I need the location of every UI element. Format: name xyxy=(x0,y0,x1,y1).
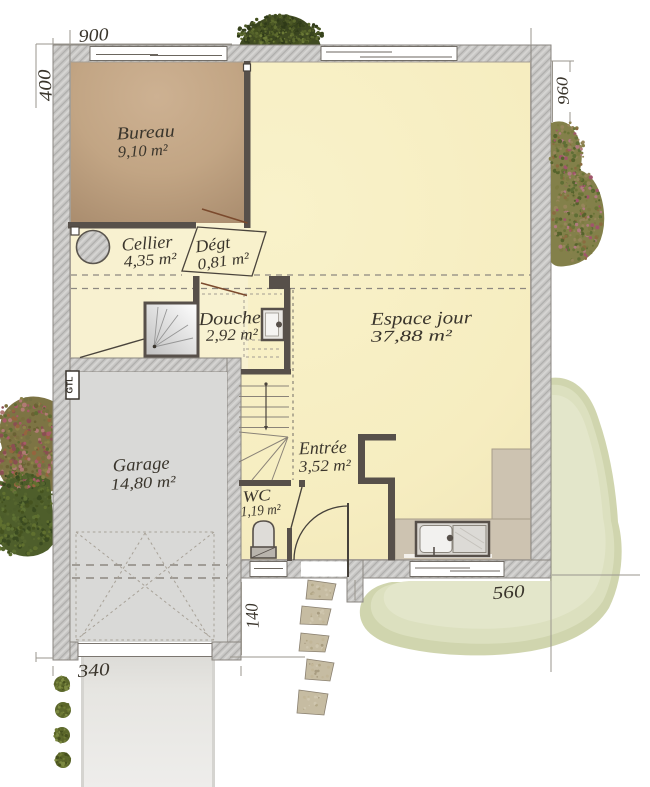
svg-text:Espace jour: Espace jour xyxy=(370,307,474,329)
svg-text:9,10 m²: 9,10 m² xyxy=(117,142,169,162)
svg-text:Entrée: Entrée xyxy=(297,437,347,459)
svg-text:14,80 m²: 14,80 m² xyxy=(110,473,177,493)
svg-text:37,88 m²: 37,88 m² xyxy=(369,327,453,345)
svg-text:140: 140 xyxy=(241,603,263,629)
svg-text:Garage: Garage xyxy=(112,453,170,476)
svg-text:560: 560 xyxy=(492,581,525,603)
svg-text:1,19 m²: 1,19 m² xyxy=(240,502,282,521)
svg-text:400: 400 xyxy=(34,69,56,102)
svg-text:GTL: GTL xyxy=(65,377,75,394)
svg-text:340: 340 xyxy=(76,659,110,681)
svg-text:3,52 m²: 3,52 m² xyxy=(297,457,352,476)
svg-text:900: 900 xyxy=(78,24,109,46)
svg-text:Bureau: Bureau xyxy=(116,121,175,144)
svg-text:2,92 m²: 2,92 m² xyxy=(206,326,260,345)
svg-text:960: 960 xyxy=(554,76,573,105)
